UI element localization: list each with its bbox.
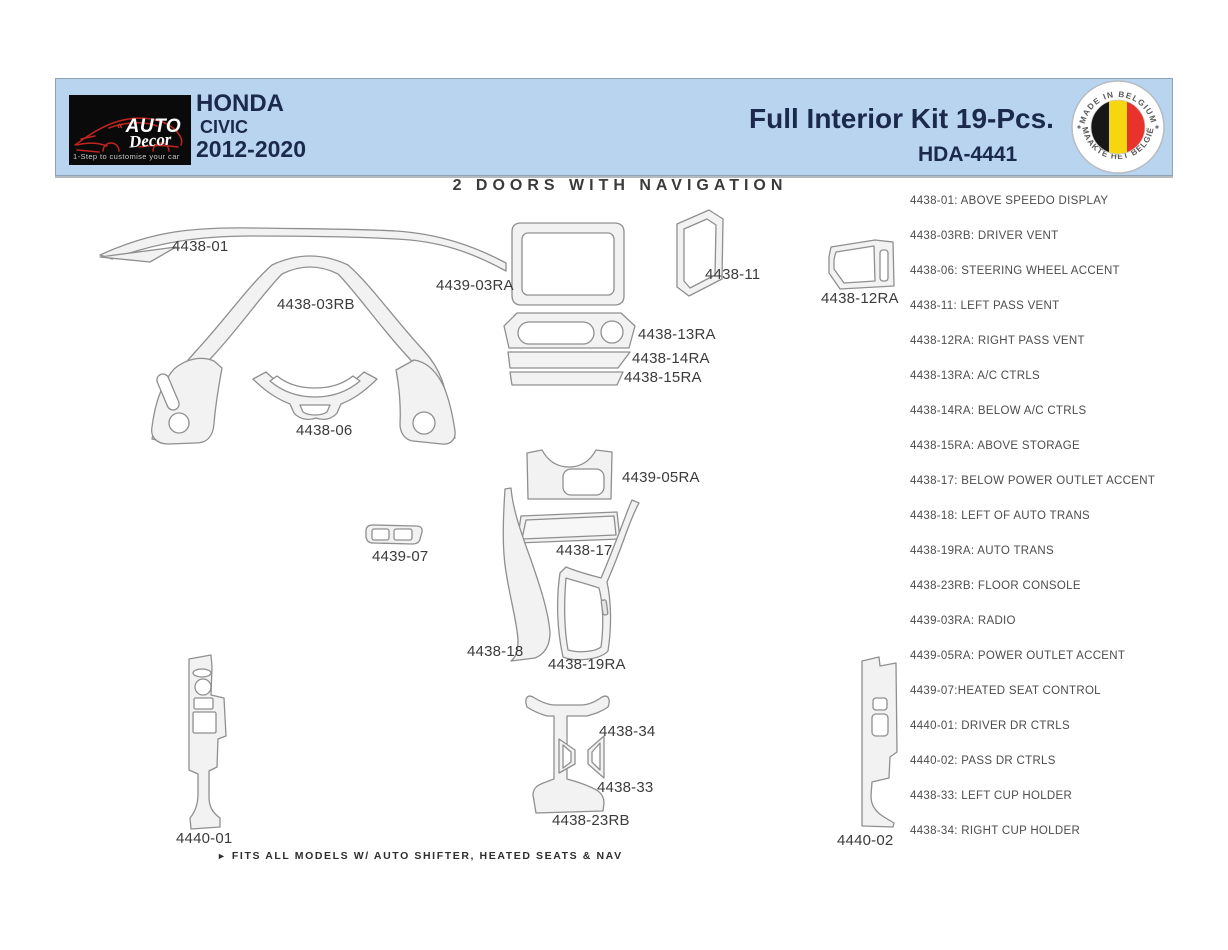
part-label-4438-23RB: 4438-23RB <box>552 812 630 829</box>
legend-item: 4438-14RA: BELOW A/C CTRLS <box>910 394 1220 429</box>
part-label-4440-02: 4440-02 <box>837 832 893 849</box>
part-label-4438-06: 4438-06 <box>296 422 352 439</box>
legend-item: 4439-03RA: RADIO <box>910 604 1220 639</box>
part-label-4439-07: 4439-07 <box>372 548 428 565</box>
part-label-4438-11: 4438-11 <box>705 266 760 283</box>
part-shape-4439-03RA <box>512 223 624 305</box>
part-shape-4440-01 <box>189 655 226 829</box>
legend-item: 4438-18: LEFT OF AUTO TRANS <box>910 499 1220 534</box>
legend-item: 4438-33: LEFT CUP HOLDER <box>910 779 1220 814</box>
arrow-marker-icon: ► <box>217 851 226 861</box>
legend-item: 4439-07:HEATED SEAT CONTROL <box>910 674 1220 709</box>
legend-item: 4438-13RA: A/C CTRLS <box>910 359 1220 394</box>
part-label-4438-18: 4438-18 <box>467 643 523 660</box>
part-label-4438-12RA: 4438-12RA <box>821 290 899 307</box>
part-shape-4438-15RA <box>510 372 623 385</box>
legend-item: 4438-11: LEFT PASS VENT <box>910 289 1220 324</box>
part-label-4438-34: 4438-34 <box>599 723 655 740</box>
part-label-4439-05RA: 4439-05RA <box>622 469 700 486</box>
legend-item: 4438-15RA: ABOVE STORAGE <box>910 429 1220 464</box>
part-label-4439-03RA: 4439-03RA <box>436 277 514 294</box>
part-shape-4439-07 <box>366 525 422 544</box>
part-label-4438-33: 4438-33 <box>597 779 653 796</box>
legend-item: 4438-06: STEERING WHEEL ACCENT <box>910 254 1220 289</box>
part-label-4438-01: 4438-01 <box>172 238 228 255</box>
part-shape-4438-11 <box>677 210 723 296</box>
legend-list: 4438-01: ABOVE SPEEDO DISPLAY 4438-03RB:… <box>910 184 1220 849</box>
part-label-4438-19RA: 4438-19RA <box>548 656 626 673</box>
fitment-note: ►FITS ALL MODELS W/ AUTO SHIFTER, HEATED… <box>217 850 623 862</box>
part-shape-4438-06 <box>253 372 377 419</box>
legend-item: 4438-23RB: FLOOR CONSOLE <box>910 569 1220 604</box>
part-shape-4438-34 <box>588 736 604 778</box>
part-shape-4438-18 <box>503 488 550 661</box>
legend-item: 4439-05RA: POWER OUTLET ACCENT <box>910 639 1220 674</box>
legend-item: 4438-34: RIGHT CUP HOLDER <box>910 814 1220 849</box>
part-shape-4438-13RA <box>504 313 635 348</box>
legend-item: 4438-19RA: AUTO TRANS <box>910 534 1220 569</box>
part-label-4438-13RA: 4438-13RA <box>638 326 716 343</box>
parts-diagram-sheet: «AUTO Decor 1-Step to customise your car… <box>0 0 1228 950</box>
fitment-note-text: FITS ALL MODELS W/ AUTO SHIFTER, HEATED … <box>232 850 623 862</box>
part-label-4440-01: 4440-01 <box>176 830 232 847</box>
legend-item: 4438-01: ABOVE SPEEDO DISPLAY <box>910 184 1220 219</box>
legend-item: 4438-17: BELOW POWER OUTLET ACCENT <box>910 464 1220 499</box>
part-shape-4438-14RA <box>508 352 630 368</box>
part-shape-4438-17 <box>517 512 620 543</box>
legend-item: 4438-12RA: RIGHT PASS VENT <box>910 324 1220 359</box>
part-shape-4438-12RA <box>829 240 894 289</box>
part-shape-4439-05RA <box>527 450 612 499</box>
part-label-4438-15RA: 4438-15RA <box>624 369 702 386</box>
part-shape-4440-02 <box>862 657 897 827</box>
part-shape-4438-33 <box>559 739 575 773</box>
legend-item: 4440-01: DRIVER DR CTRLS <box>910 709 1220 744</box>
legend-item: 4438-03RB: DRIVER VENT <box>910 219 1220 254</box>
part-label-4438-03RB: 4438-03RB <box>277 296 355 313</box>
legend-item: 4440-02: PASS DR CTRLS <box>910 744 1220 779</box>
part-label-4438-17: 4438-17 <box>556 542 612 559</box>
part-label-4438-14RA: 4438-14RA <box>632 350 710 367</box>
